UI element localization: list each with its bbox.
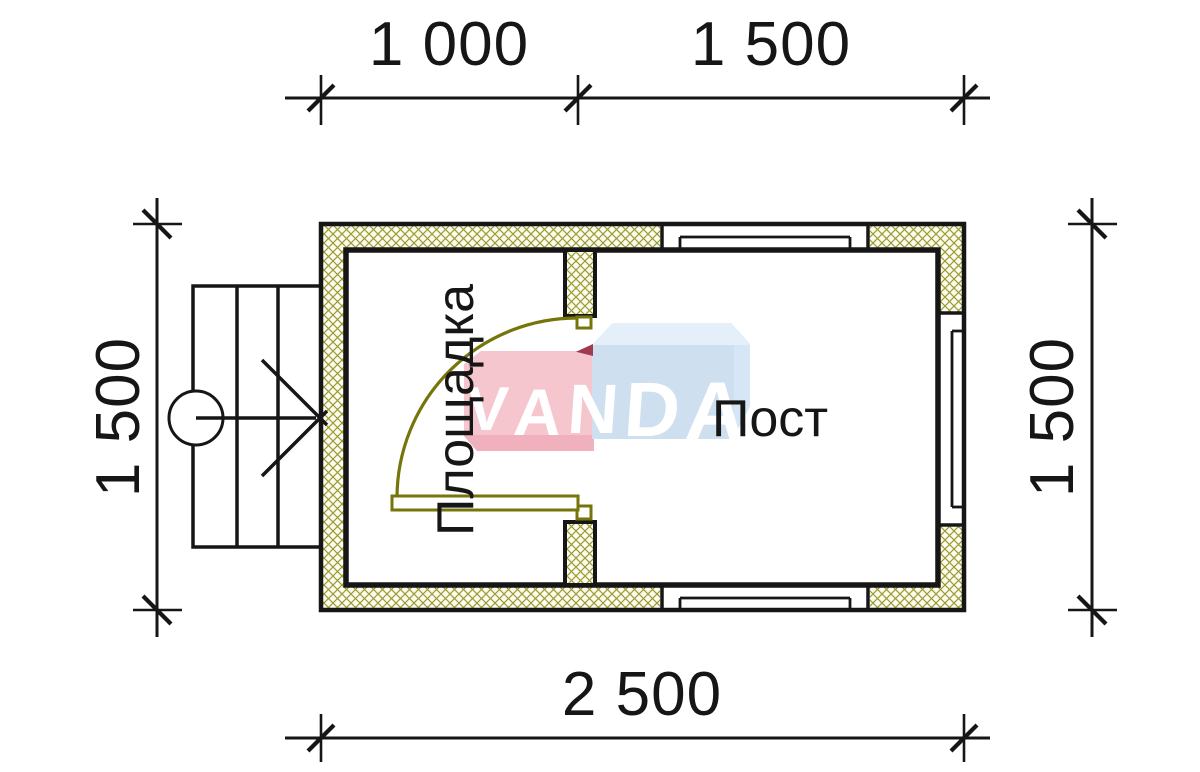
door-swing-arc [397, 318, 578, 497]
dim-bottom-label: 2 500 [562, 664, 722, 726]
room-label-post: Пост [712, 393, 828, 445]
dim-top-left-label: 1 000 [369, 14, 529, 76]
partition-wall [565, 250, 595, 585]
stairs [169, 286, 327, 547]
dim-right-label: 1 500 [1022, 337, 1084, 497]
dim-top-right-label: 1 500 [691, 14, 851, 76]
dimension-top [285, 75, 990, 125]
room-label-porch: Площадка [430, 284, 482, 536]
stairs-direction-arrow [196, 360, 327, 476]
door-leaf [392, 496, 578, 510]
dim-left-label: 1 500 [88, 337, 150, 497]
floor-plan-canvas: V A N D A [0, 0, 1200, 772]
door-jamb-top [577, 317, 591, 328]
door [392, 317, 591, 519]
